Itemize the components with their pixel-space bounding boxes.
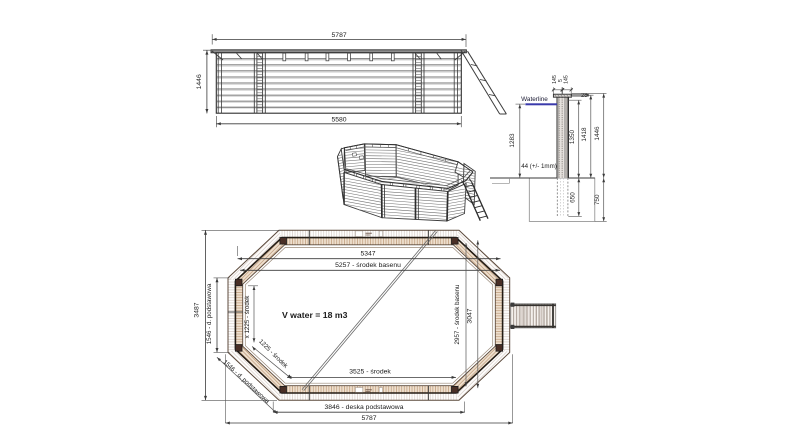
svg-text:1446: 1446: [196, 74, 203, 89]
svg-text:3525 - środek: 3525 - środek: [349, 369, 391, 376]
svg-text:650: 650: [569, 192, 576, 203]
svg-text:V water = 18 m3: V water = 18 m3: [282, 310, 348, 320]
svg-text:3047: 3047: [467, 308, 474, 323]
svg-text:5580: 5580: [331, 116, 346, 123]
svg-text:750: 750: [594, 194, 601, 205]
svg-text:28: 28: [581, 93, 587, 99]
svg-text:Waterline: Waterline: [521, 96, 548, 103]
svg-text:44 (+/- 1mm): 44 (+/- 1mm): [521, 163, 557, 170]
svg-text:1418: 1418: [581, 127, 588, 142]
svg-text:1546 - d. podstawowa: 1546 - d. podstawowa: [206, 283, 213, 344]
svg-text:2957 - środek basenu: 2957 - środek basenu: [454, 284, 461, 344]
svg-text:x 1225 - środek: x 1225 - środek: [244, 295, 251, 339]
svg-text:1446: 1446: [594, 126, 601, 141]
svg-text:5787: 5787: [361, 415, 376, 422]
svg-text:5787: 5787: [332, 32, 347, 39]
svg-text:5347: 5347: [360, 251, 375, 258]
svg-text:1350: 1350: [569, 129, 576, 144]
svg-text:3846 - deska podstawowa: 3846 - deska podstawowa: [325, 404, 404, 411]
svg-text:1283: 1283: [509, 133, 516, 148]
svg-text:5257 - środek basenu: 5257 - środek basenu: [335, 262, 401, 269]
svg-text:145: 145: [564, 75, 570, 84]
svg-text:3487: 3487: [194, 302, 201, 317]
